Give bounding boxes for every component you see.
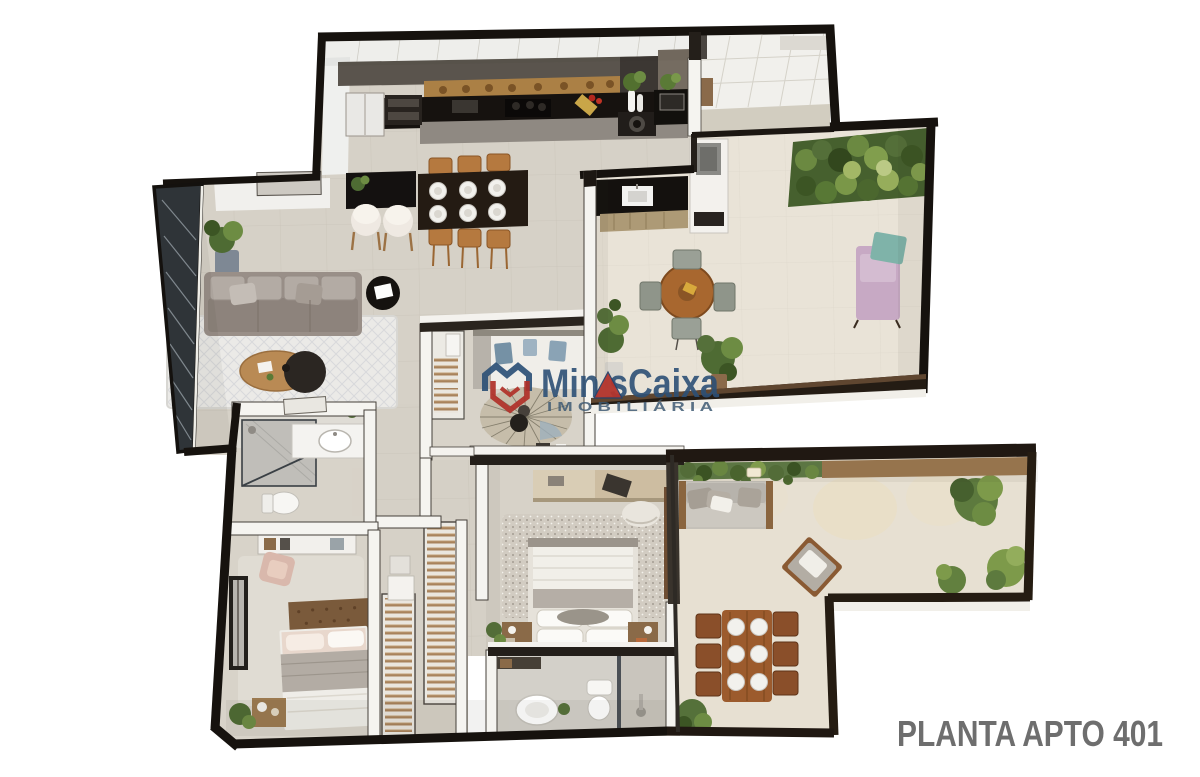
svg-text:I M O B I L I Á R I A: I M O B I L I Á R I A [547,399,714,414]
svg-text:PLANTA APTO 401: PLANTA APTO 401 [897,713,1163,754]
